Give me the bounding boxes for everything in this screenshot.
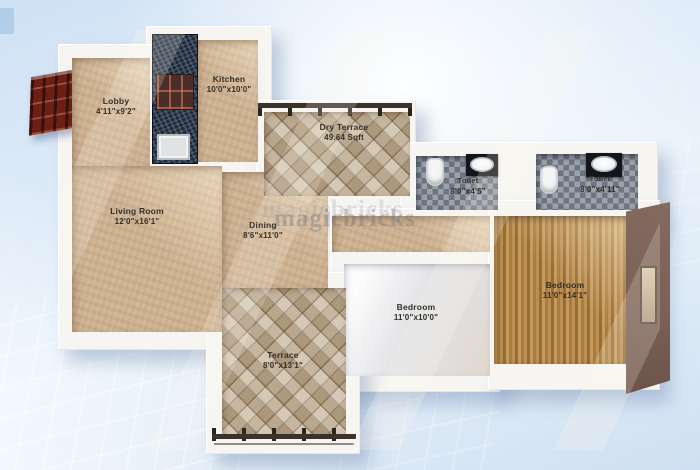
lobby-dims: 4'11"x9'2": [61, 107, 171, 118]
room-label-terrace: Terrace 8'0"x13'1": [228, 350, 338, 371]
floorplan-canvas: magicbricks magicbricks Lobby 4'11"x9'2"…: [0, 0, 700, 470]
living-room-dims: 12'0"x16'1": [82, 217, 192, 228]
bedroom-2-dims: 11'0"x14'1": [510, 291, 620, 302]
toilet-1-basin-icon: [470, 157, 494, 172]
terrace-name: Terrace: [228, 350, 338, 361]
room-label-kitchen: Kitchen 10'0"x10'0": [174, 74, 284, 95]
background-corner-shape: [0, 8, 14, 34]
bedroom-2-name: Bedroom: [510, 280, 620, 291]
kitchen-dims: 10'0"x10'0": [174, 85, 284, 96]
kitchen-sink-icon: [157, 134, 190, 160]
toilet-2-dims: 8'0"x4'11": [545, 185, 655, 196]
room-label-living-room: Living Room 12'0"x16'1": [82, 206, 192, 227]
bedroom-1-name: Bedroom: [361, 302, 471, 313]
accent-wall-window-icon: [642, 268, 655, 322]
dining-name: Dining: [208, 220, 318, 231]
room-label-dry-terrace: Dry Terrace 49.64 Sqft: [289, 122, 399, 143]
dining-dims: 8'6"x11'0": [208, 231, 318, 242]
room-label-lobby: Lobby 4'11"x9'2": [61, 96, 171, 117]
room-label-toilet-2: Toilet 8'0"x4'11": [545, 174, 655, 195]
living-room-name: Living Room: [82, 206, 192, 217]
dry-terrace-railing: [258, 103, 412, 108]
room-label-bedroom-2: Bedroom 11'0"x14'1": [510, 280, 620, 301]
room-label-toilet-1: Toilet 8'0"x4'5": [413, 176, 523, 197]
lobby-name: Lobby: [61, 96, 171, 107]
room-label-bedroom-1: Bedroom 11'0"x10'0": [361, 302, 471, 323]
terrace-railing: [212, 434, 356, 439]
toilet-2-name: Toilet: [545, 174, 655, 185]
dry-terrace-dims: 49.64 Sqft: [289, 133, 399, 144]
toilet-1-name: Toilet: [413, 176, 523, 187]
kitchen-floor: [196, 40, 258, 162]
bedroom-2-accent-wall: [626, 202, 670, 394]
toilet-1-dims: 8'0"x4'5": [413, 187, 523, 198]
kitchen-name: Kitchen: [174, 74, 284, 85]
room-label-dining: Dining 8'6"x11'0": [208, 220, 318, 241]
bedroom-1-dims: 11'0"x10'0": [361, 313, 471, 324]
terrace-railing-lower: [214, 443, 354, 445]
living-room-floor: [72, 166, 222, 332]
terrace-dims: 8'0"x13'1": [228, 361, 338, 372]
toilet-2-basin-icon: [591, 156, 617, 172]
dry-terrace-name: Dry Terrace: [289, 122, 399, 133]
